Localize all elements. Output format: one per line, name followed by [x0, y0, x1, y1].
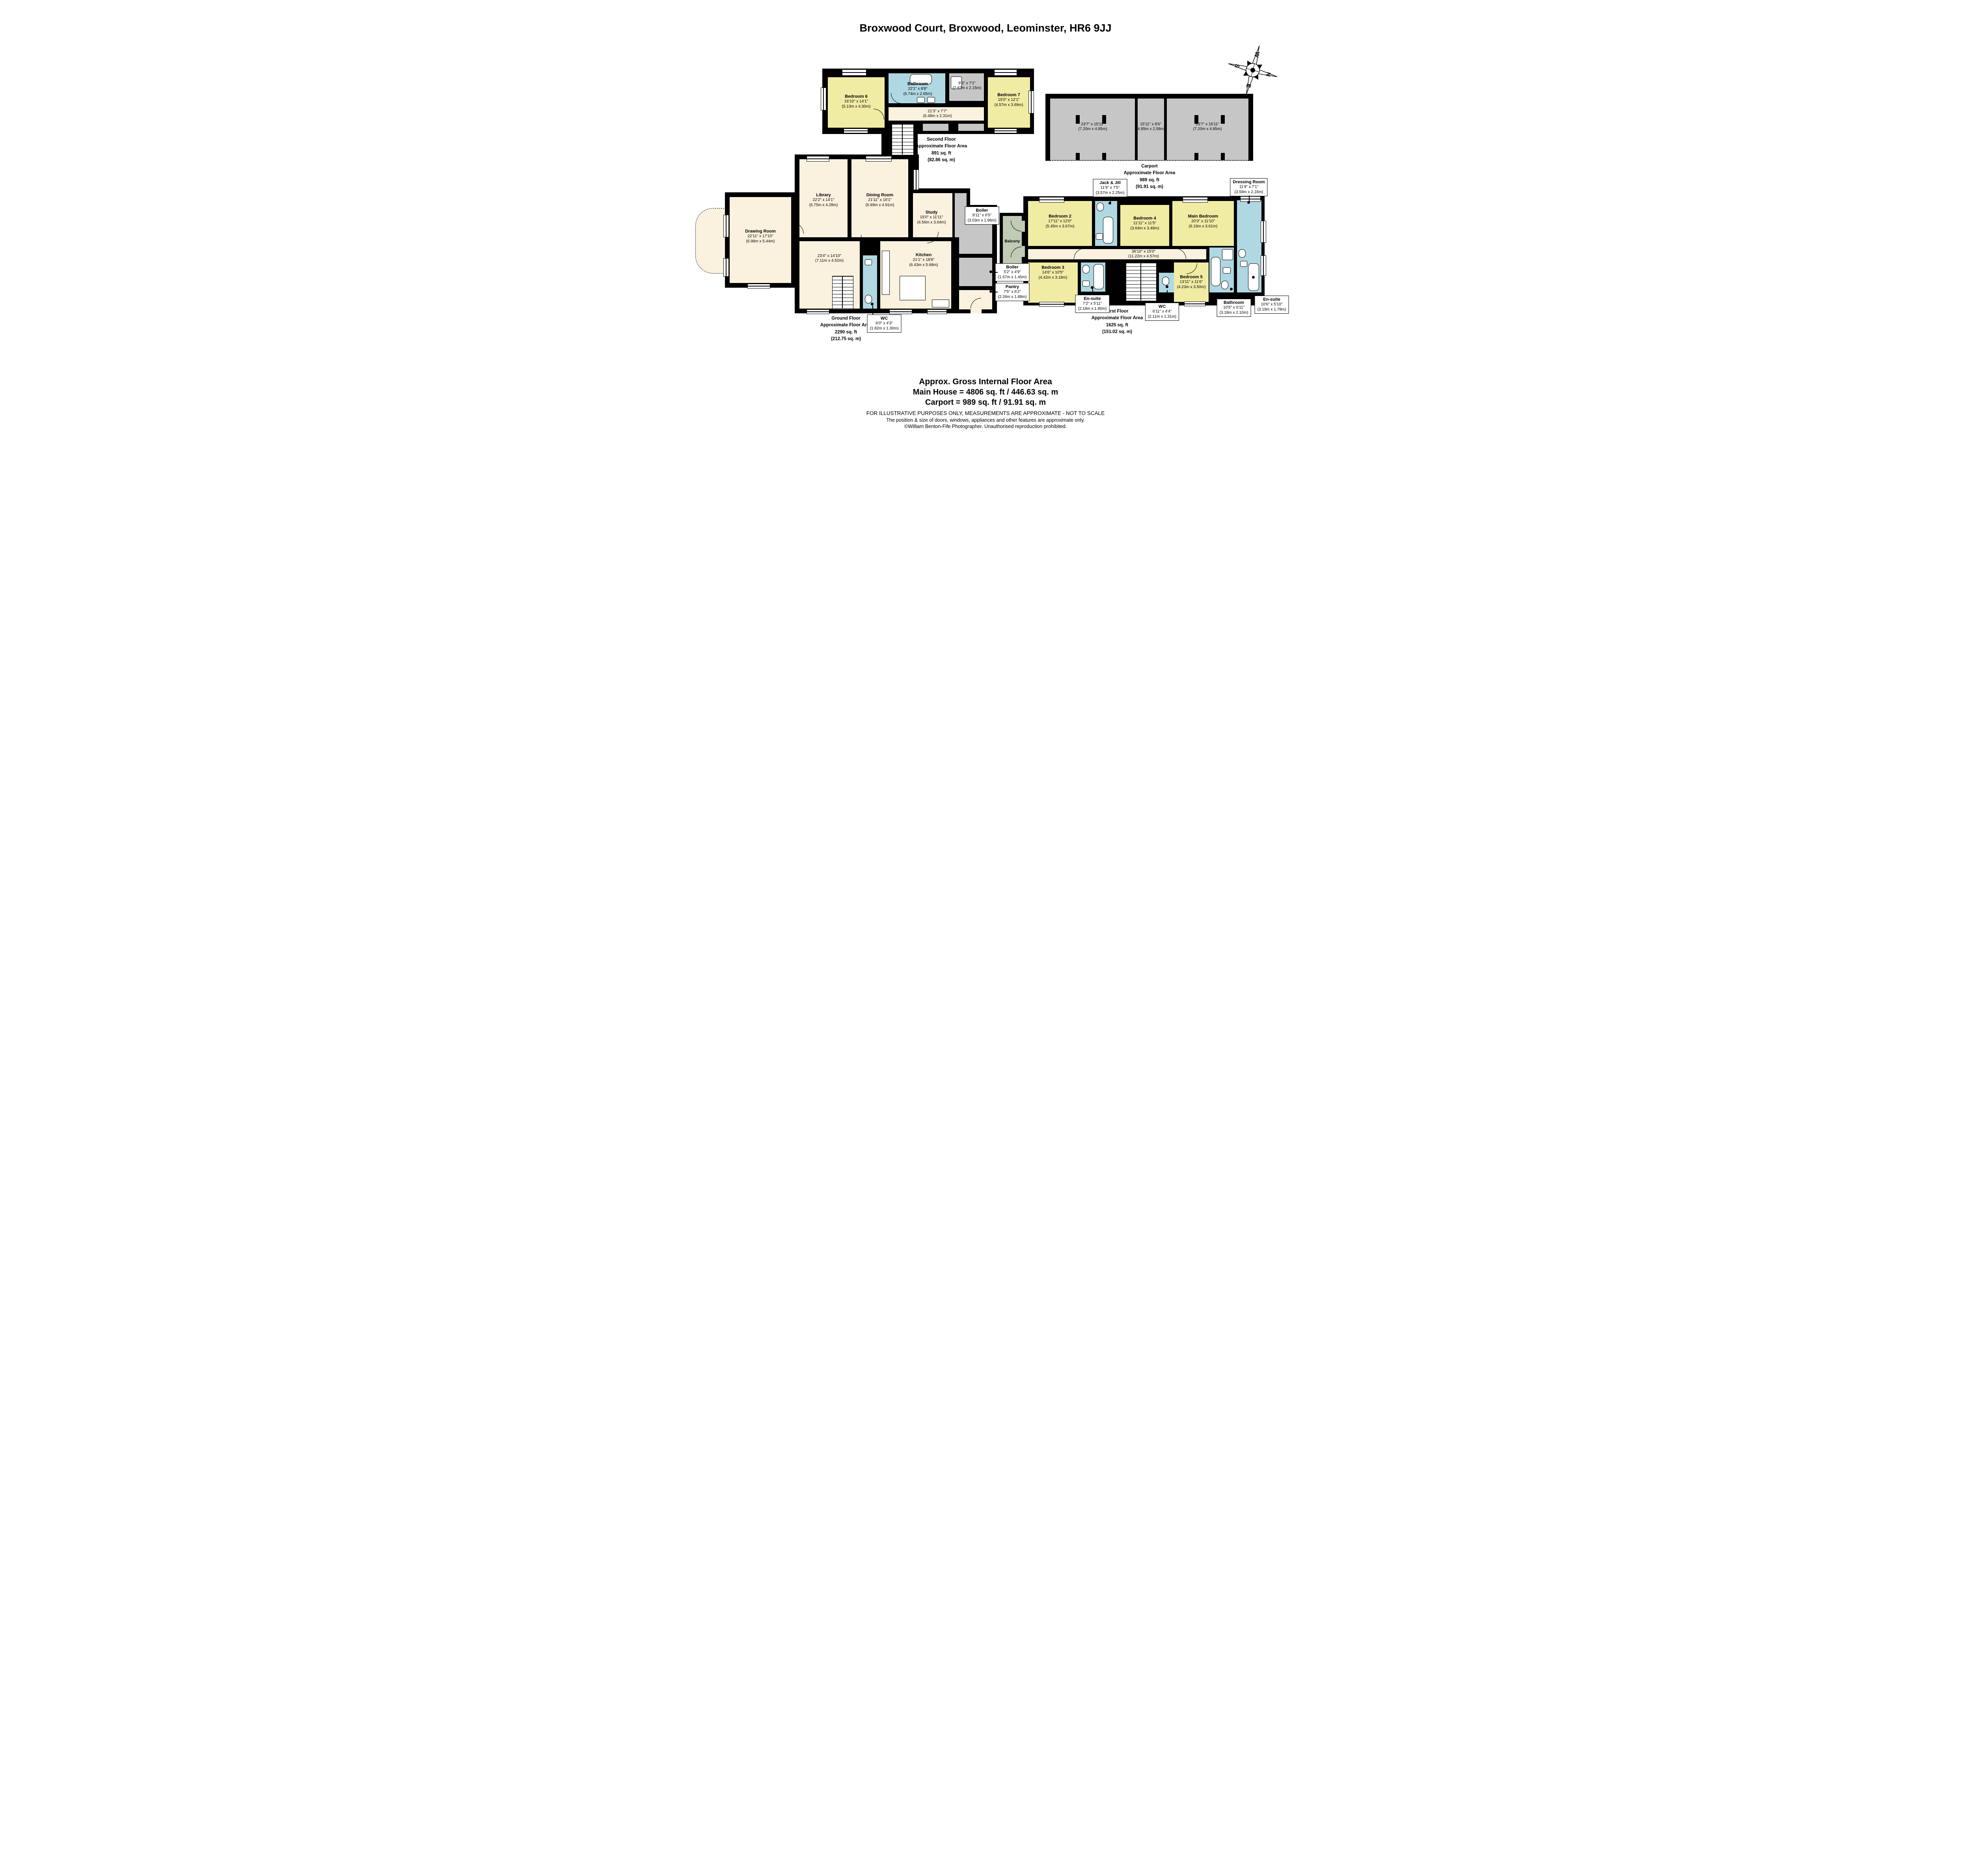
leader-line: [1092, 288, 1093, 295]
leader-dot: [871, 303, 874, 305]
door-opening: [1021, 246, 1025, 257]
disclaimer-scale: FOR ILLUSTRATIVE PURPOSES ONLY, MEASUREM…: [866, 410, 1105, 416]
stairs: [1126, 262, 1157, 301]
page-title: Broxwood Court, Broxwood, Leominster, HR…: [859, 22, 1111, 34]
label-bedroom-4: Bedroom 4 11'11" x 11'5" (3.64m x 3.49m): [1131, 216, 1159, 231]
summary-main-house: Main House = 4806 sq. ft / 446.63 sq. m: [866, 387, 1105, 397]
room-utility-corridor: [959, 258, 992, 286]
leader-line: [992, 292, 998, 292]
kitchen-counter: [882, 251, 890, 295]
leader-dot: [1091, 286, 1094, 289]
window: [994, 69, 1017, 76]
caption-second-floor: Second Floor Approximate Floor Area 891 …: [916, 136, 967, 164]
compass-west-label: W: [1253, 51, 1261, 58]
window: [994, 128, 1017, 133]
summary-carport: Carport = 989 sq. ft / 91.91 sq. m: [866, 397, 1105, 408]
label-box-wc-ff: WC 6'11" x 4'4" (2.11m x 1.31m): [1145, 303, 1179, 321]
leader-line: [992, 272, 998, 273]
label-study: Study 15'0" x 11'11" (4.56m x 3.64m): [917, 210, 946, 225]
label-carport-left-bay: 23'7" x 15'11" (7.20m x 4.85m): [1079, 122, 1107, 132]
sink-icon: [1240, 261, 1247, 267]
sink-icon: [1096, 233, 1103, 240]
label-box-boiler-large: Boiler 9'11" x 6'5" (3.03m x 1.96m): [965, 207, 999, 225]
shower-icon: [1222, 249, 1233, 260]
window: [807, 309, 829, 314]
label-main-bedroom: Main Bedroom 20'3" x 11'10" (6.16m x 3.6…: [1188, 214, 1218, 229]
toilet-icon: [1221, 281, 1228, 289]
door-opening: [971, 309, 982, 313]
toilet-icon: [1162, 277, 1169, 285]
pillar: [1076, 153, 1080, 160]
label-box-dressing: Dressing Room 11'9" x 7'1" (3.58m x 2.16…: [1230, 178, 1267, 196]
summary-block: Approx. Gross Internal Floor Area Main H…: [866, 377, 1105, 429]
window: [1039, 302, 1064, 307]
window: [1028, 91, 1034, 114]
toilet-icon: [1082, 265, 1090, 274]
leader-line: [872, 305, 873, 315]
compass-south-label: S: [1233, 63, 1241, 69]
room-closet-sf-2: [958, 124, 984, 131]
window: [927, 309, 947, 314]
leader-dot: [1247, 201, 1250, 204]
label-bedroom-6: Bedroom 6 16'10" x 14'1" (5.13m x 4.30m): [842, 94, 871, 109]
leader-line: [1231, 292, 1232, 299]
copyright-notice: ©William Benton-Fife Photographer. Unaut…: [866, 424, 1105, 429]
stairs-divider: [842, 276, 843, 309]
toilet-icon: [865, 295, 872, 303]
pillar: [1102, 153, 1106, 160]
label-box-jack-and-jill: Jack & Jill 11'9" x 7'5" (3.57m x 2.25m): [1093, 179, 1127, 197]
pillar: [1221, 153, 1225, 160]
leader-dot: [1166, 285, 1168, 288]
bathtub-icon: [1094, 264, 1104, 289]
room-dressing: [1237, 200, 1261, 250]
kitchen-island: [900, 276, 926, 300]
label-bathroom-sf: Bathroom 22'1" x 8'8" (6.74m x 2.65m): [904, 82, 932, 97]
sink-icon: [1082, 281, 1090, 287]
label-bedroom-2: Bedroom 2 17'11" x 12'0" (5.45m x 3.67m): [1046, 214, 1075, 229]
sink-icon: [917, 97, 925, 103]
label-landing-ff: 36'10" x 15'0" (11.22m x 4.57m): [1128, 249, 1159, 259]
window: [1183, 197, 1208, 203]
kitchen-sink-unit: [932, 300, 949, 307]
window: [807, 156, 829, 162]
leader-dot: [1108, 202, 1111, 205]
window: [1261, 221, 1266, 243]
label-box-ensuite-main: En-suite 10'6" x 5'10" (3.19m x 1.79m): [1255, 296, 1289, 314]
window: [723, 215, 729, 237]
window: [1184, 301, 1205, 306]
label-bedroom-3: Bedroom 3 14'6" x 10'5" (4.42m x 3.18m): [1039, 265, 1067, 280]
toilet-icon: [1239, 249, 1246, 258]
door-opening: [1021, 221, 1025, 232]
label-hall: 23'4" x 14'10" (7.11m x 4.52m): [815, 254, 844, 263]
stairs-divider: [902, 124, 903, 154]
window: [1261, 255, 1266, 276]
leader-dot: [989, 270, 992, 273]
label-box-pantry: Pantry 7'5" x 6'2" (2.26m x 1.88m): [995, 283, 1030, 301]
label-carport-middle-bay: 15'11" x 8'6" (4.85m x 2.58m): [1136, 122, 1165, 132]
leader-dot: [989, 290, 992, 293]
label-kitchen: Kitchen 21'1" x 18'8" (6.43m x 5.68m): [909, 253, 938, 268]
window: [1039, 197, 1064, 203]
label-dining: Dining Room 21'11" x 16'1" (6.69m x 4.91…: [866, 193, 894, 208]
leader-dot: [1252, 276, 1255, 279]
label-drawing: Drawing Room 22'11" x 17'10" (6.98m x 5.…: [745, 229, 776, 244]
label-landing-sf: 21'3" x 7'7" (6.48m x 2.31m): [923, 109, 952, 119]
stairs: [832, 276, 853, 309]
label-library: Library 22'2" x 14'1" (6.75m x 4.28m): [809, 193, 838, 208]
window: [723, 258, 729, 277]
label-bedroom-7: Bedroom 7 15'0" x 12'1" (4.57m x 3.69m): [995, 93, 1023, 108]
label-balcony: Balcony: [1005, 239, 1020, 244]
label-box-bathroom-ff: Bathroom 10'5" x 6'11" (3.18m x 2.10m): [1217, 299, 1251, 317]
label-box-boiler-small: Boiler 5'2" x 4'9" (1.57m x 1.45m): [995, 263, 1030, 281]
window: [747, 284, 770, 288]
compass-north-label: N: [1265, 71, 1272, 77]
leader-dot: [1230, 288, 1233, 290]
window: [866, 156, 892, 162]
room-closet-sf-1: [923, 124, 948, 131]
stairs: [892, 124, 914, 155]
leader-line: [1167, 290, 1168, 303]
caption-carport: Carport Approximate Floor Area 989 sq. f…: [1124, 163, 1176, 190]
sink-icon: [927, 97, 935, 103]
label-store-sf: 9'3" x 7'1" (2.82m x 2.15m): [953, 81, 982, 91]
summary-heading: Approx. Gross Internal Floor Area: [866, 377, 1105, 387]
pillar: [1194, 153, 1198, 160]
sink-icon: [865, 259, 872, 265]
window: [821, 87, 826, 110]
window: [889, 309, 912, 314]
label-box-wc-gf: WC 6'0" x 4'3" (1.82m x 1.30m): [867, 315, 902, 333]
label-bedroom-5: Bedroom 5 13'11" x 11'6" (4.23m x 3.50m): [1177, 275, 1206, 290]
window: [844, 128, 868, 133]
label-carport-right-bay: 23'7" x 15'11" (7.20m x 4.85m): [1193, 122, 1222, 132]
floorplan-page: Broxwood Court, Broxwood, Leominster, HR…: [676, 0, 1295, 437]
toilet-icon: [1097, 203, 1104, 211]
label-box-ensuite-3: En-suite 7'2" x 5'11" (2.18m x 1.80m): [1075, 295, 1110, 313]
compass-rose: N S E W: [1225, 43, 1280, 98]
bathtub-icon: [1103, 217, 1113, 244]
window: [842, 69, 866, 76]
compass-east-label: E: [1244, 83, 1252, 88]
caption-ground-floor: Ground Floor Approximate Floor Area 2290…: [820, 315, 872, 342]
disclaimer-features: The position & size of doors, windows, a…: [866, 417, 1105, 423]
stairs-divider: [1140, 262, 1141, 300]
bathtub-icon: [1211, 257, 1220, 286]
window: [913, 169, 919, 190]
sink-icon: [1223, 267, 1231, 274]
window: [1240, 196, 1261, 202]
